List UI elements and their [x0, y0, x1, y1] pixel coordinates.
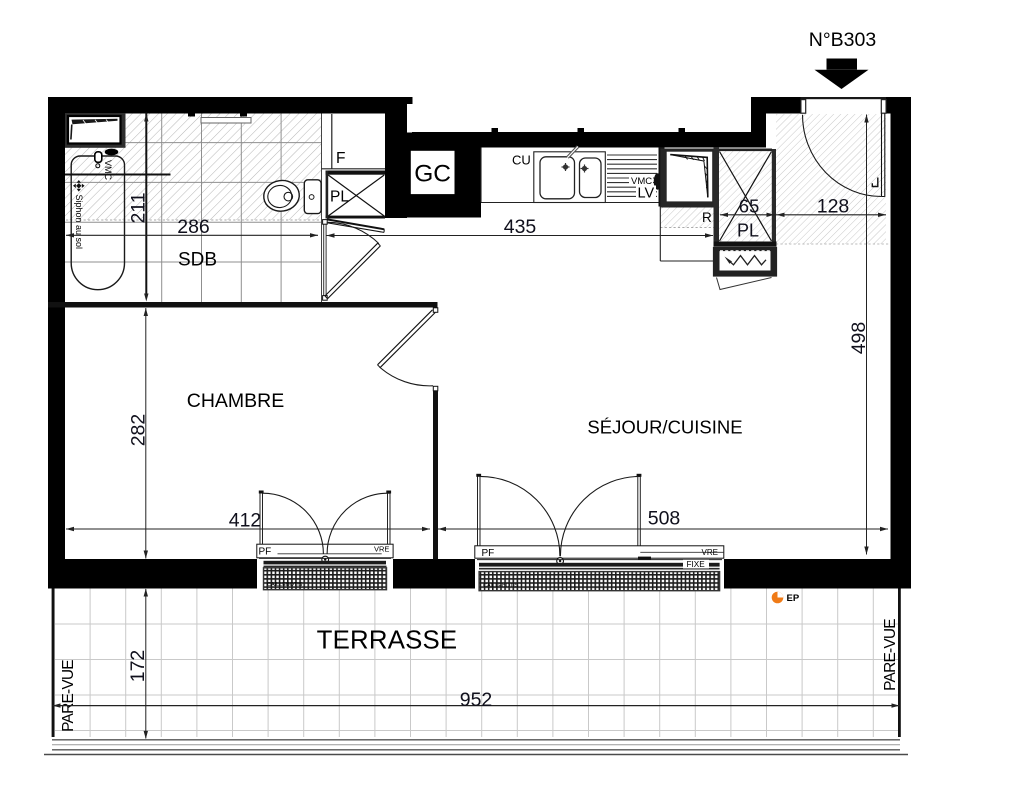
svg-text:412: 412 [229, 510, 262, 532]
svg-text:N°B303: N°B303 [809, 29, 876, 51]
svg-text:508: 508 [648, 508, 681, 530]
svg-text:SÉJOUR/CUISINE: SÉJOUR/CUISINE [587, 417, 742, 438]
svg-text:PL: PL [737, 221, 759, 241]
svg-text:R: R [702, 210, 712, 225]
svg-text:435: 435 [504, 216, 537, 238]
svg-text:LV: LV [638, 186, 655, 202]
svg-text:VRE: VRE [374, 545, 389, 554]
svg-text:PARE-VUE: PARE-VUE [60, 660, 77, 732]
svg-text:FIXE: FIXE [687, 560, 706, 569]
svg-text:VMC: VMC [103, 160, 113, 181]
svg-text:128: 128 [817, 196, 850, 218]
svg-text:PF: PF [259, 547, 272, 558]
svg-text:SDB: SDB [178, 250, 217, 271]
svg-text:CHAMBRE: CHAMBRE [187, 390, 285, 412]
svg-text:PL: PL [330, 189, 349, 206]
svg-text:F: F [336, 150, 345, 167]
svg-text:GC: GC [414, 161, 451, 188]
svg-text:CAILLEBOTIS: CAILLEBOTIS [267, 582, 303, 588]
svg-text:CAILLEBOTIS: CAILLEBOTIS [483, 583, 519, 589]
svg-text:CU: CU [512, 153, 531, 168]
svg-text:211: 211 [127, 192, 149, 223]
svg-text:952: 952 [460, 689, 493, 711]
svg-text:PF: PF [482, 548, 495, 559]
svg-text:286: 286 [177, 216, 210, 238]
svg-text:EP: EP [787, 593, 800, 604]
svg-text:172: 172 [127, 650, 149, 683]
svg-text:TERRASSE: TERRASSE [317, 627, 458, 655]
svg-text:PARE-VUE: PARE-VUE [882, 619, 899, 691]
svg-text:498: 498 [848, 322, 870, 355]
svg-text:282: 282 [127, 414, 149, 447]
svg-text:Siphon au sol: Siphon au sol [74, 195, 84, 250]
svg-text:VRE: VRE [702, 548, 718, 557]
svg-text:65: 65 [739, 196, 760, 217]
